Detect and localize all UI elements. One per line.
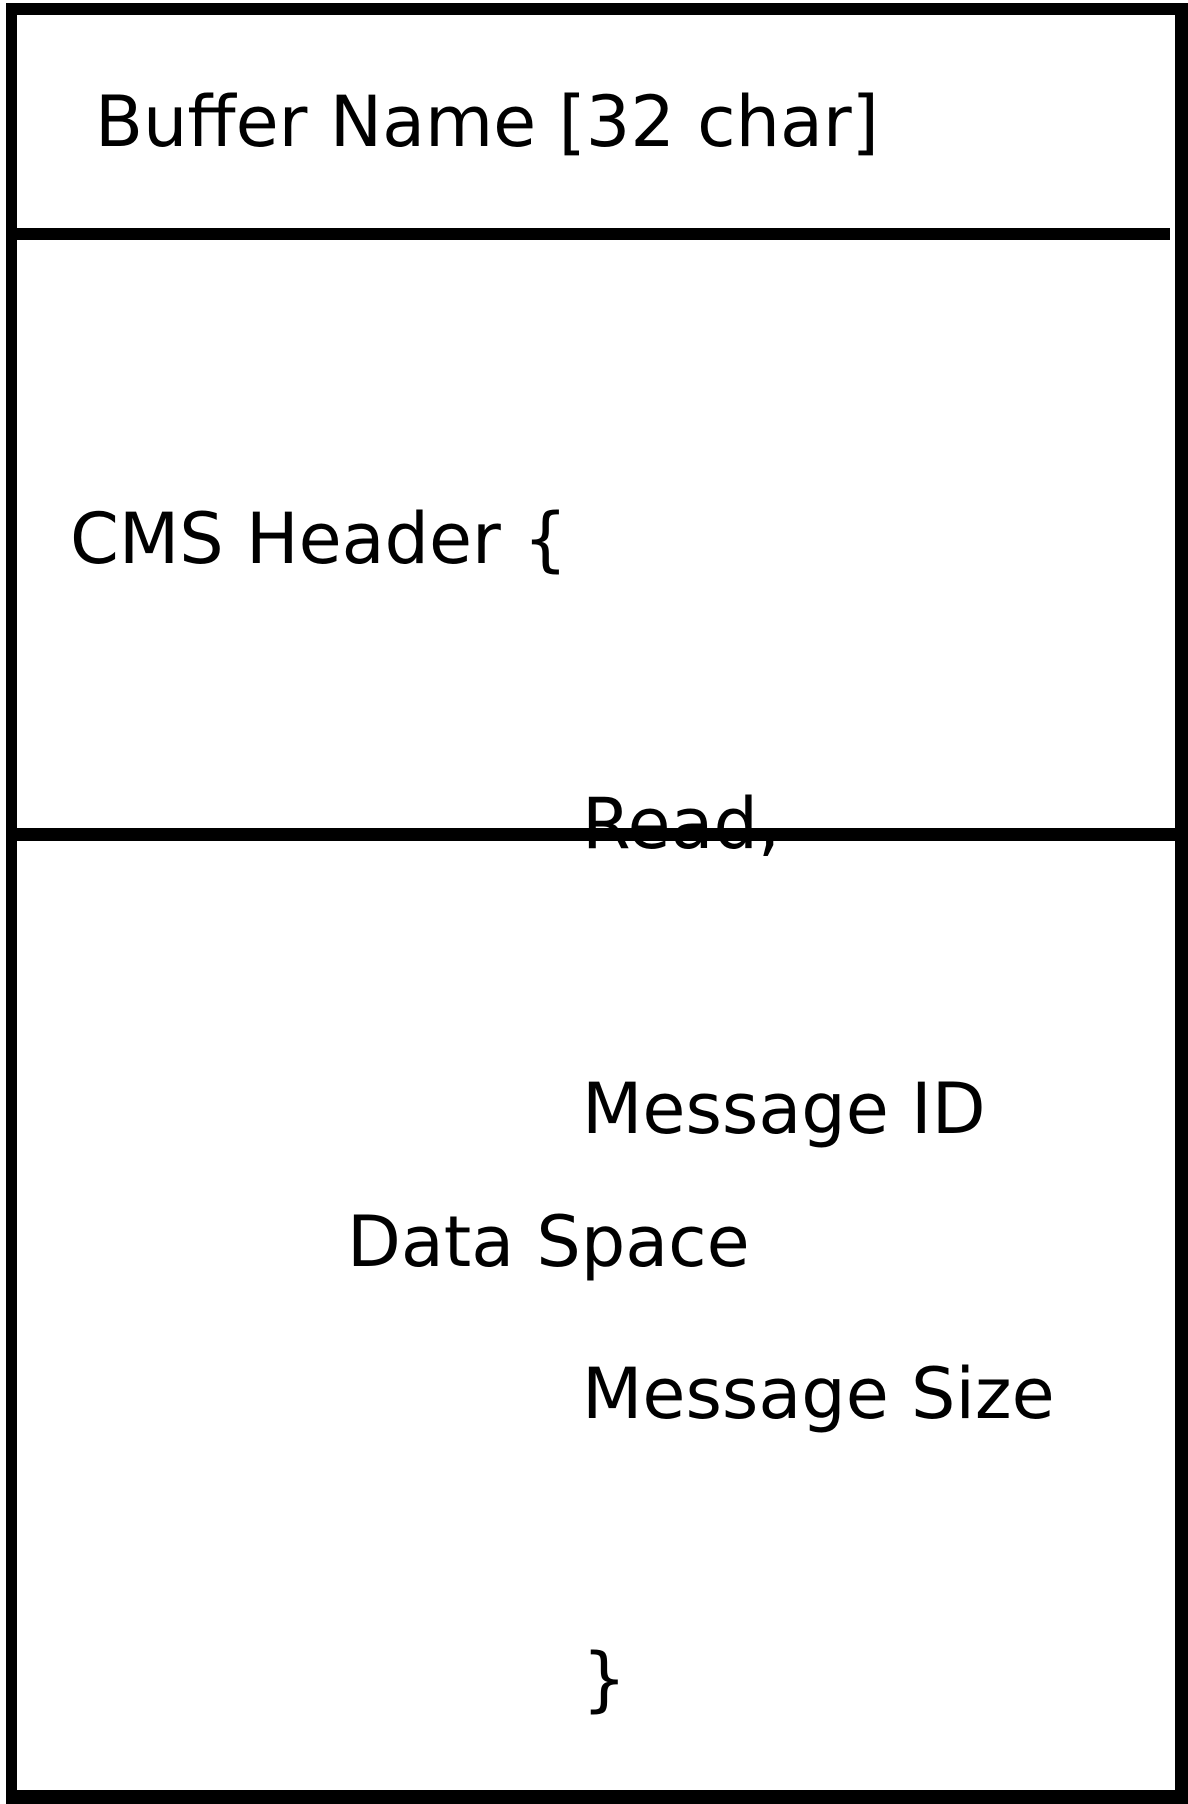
shared-memory-buffer-diagram: Buffer Name [32 char] CMS Header { Read,… — [0, 0, 1188, 1804]
cms-header-field-message-id: Message ID — [582, 1062, 1055, 1157]
cms-header-field-message-size: Message Size — [582, 1347, 1055, 1442]
section-divider-bottom — [17, 828, 1175, 841]
cms-header-open-line: CMS Header { — [70, 492, 1055, 587]
buffer-name-label: Buffer Name [32 char] — [95, 87, 879, 157]
cms-header-field-read: Read, — [582, 777, 1055, 872]
data-space-label: Data Space — [347, 1207, 750, 1277]
section-divider-top — [17, 228, 1170, 240]
cms-header-section: CMS Header { Read, Message ID Message Si… — [70, 302, 1055, 1804]
cms-header-close-brace: } — [582, 1632, 1055, 1727]
